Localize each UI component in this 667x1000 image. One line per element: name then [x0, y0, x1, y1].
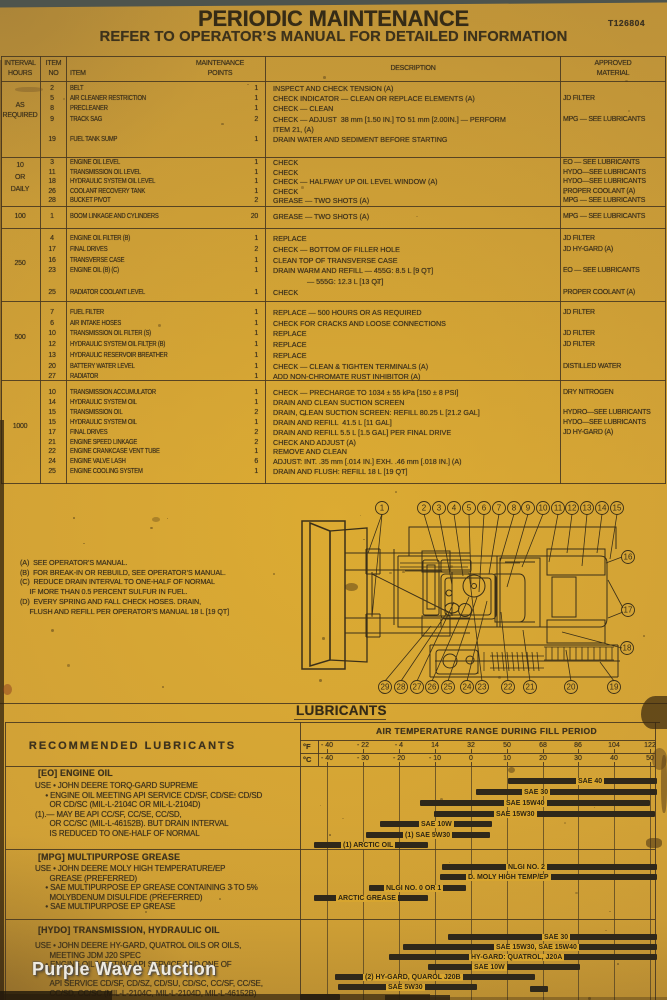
- svg-text:9: 9: [526, 504, 531, 513]
- svg-text:19: 19: [610, 683, 619, 692]
- svg-text:14: 14: [598, 504, 607, 513]
- svg-text:22: 22: [504, 683, 513, 692]
- svg-text:29: 29: [381, 683, 390, 692]
- svg-text:27: 27: [413, 683, 422, 692]
- svg-text:21: 21: [526, 683, 535, 692]
- svg-text:4: 4: [452, 504, 457, 513]
- svg-text:2: 2: [422, 504, 427, 513]
- svg-text:13: 13: [583, 504, 592, 513]
- svg-text:12: 12: [568, 504, 577, 513]
- svg-text:15: 15: [613, 504, 622, 513]
- svg-text:3: 3: [437, 504, 442, 513]
- svg-text:6: 6: [482, 504, 487, 513]
- svg-text:25: 25: [444, 683, 453, 692]
- svg-text:23: 23: [478, 683, 487, 692]
- svg-text:10: 10: [539, 504, 548, 513]
- svg-text:17: 17: [624, 606, 633, 615]
- svg-text:8: 8: [512, 504, 517, 513]
- svg-text:16: 16: [624, 553, 633, 562]
- svg-text:28: 28: [397, 683, 406, 692]
- svg-text:11: 11: [554, 504, 563, 513]
- svg-text:24: 24: [463, 683, 472, 692]
- svg-text:1: 1: [380, 504, 385, 513]
- svg-text:5: 5: [467, 504, 472, 513]
- svg-text:20: 20: [567, 683, 576, 692]
- svg-text:18: 18: [623, 644, 632, 653]
- svg-text:7: 7: [497, 504, 502, 513]
- svg-text:26: 26: [428, 683, 437, 692]
